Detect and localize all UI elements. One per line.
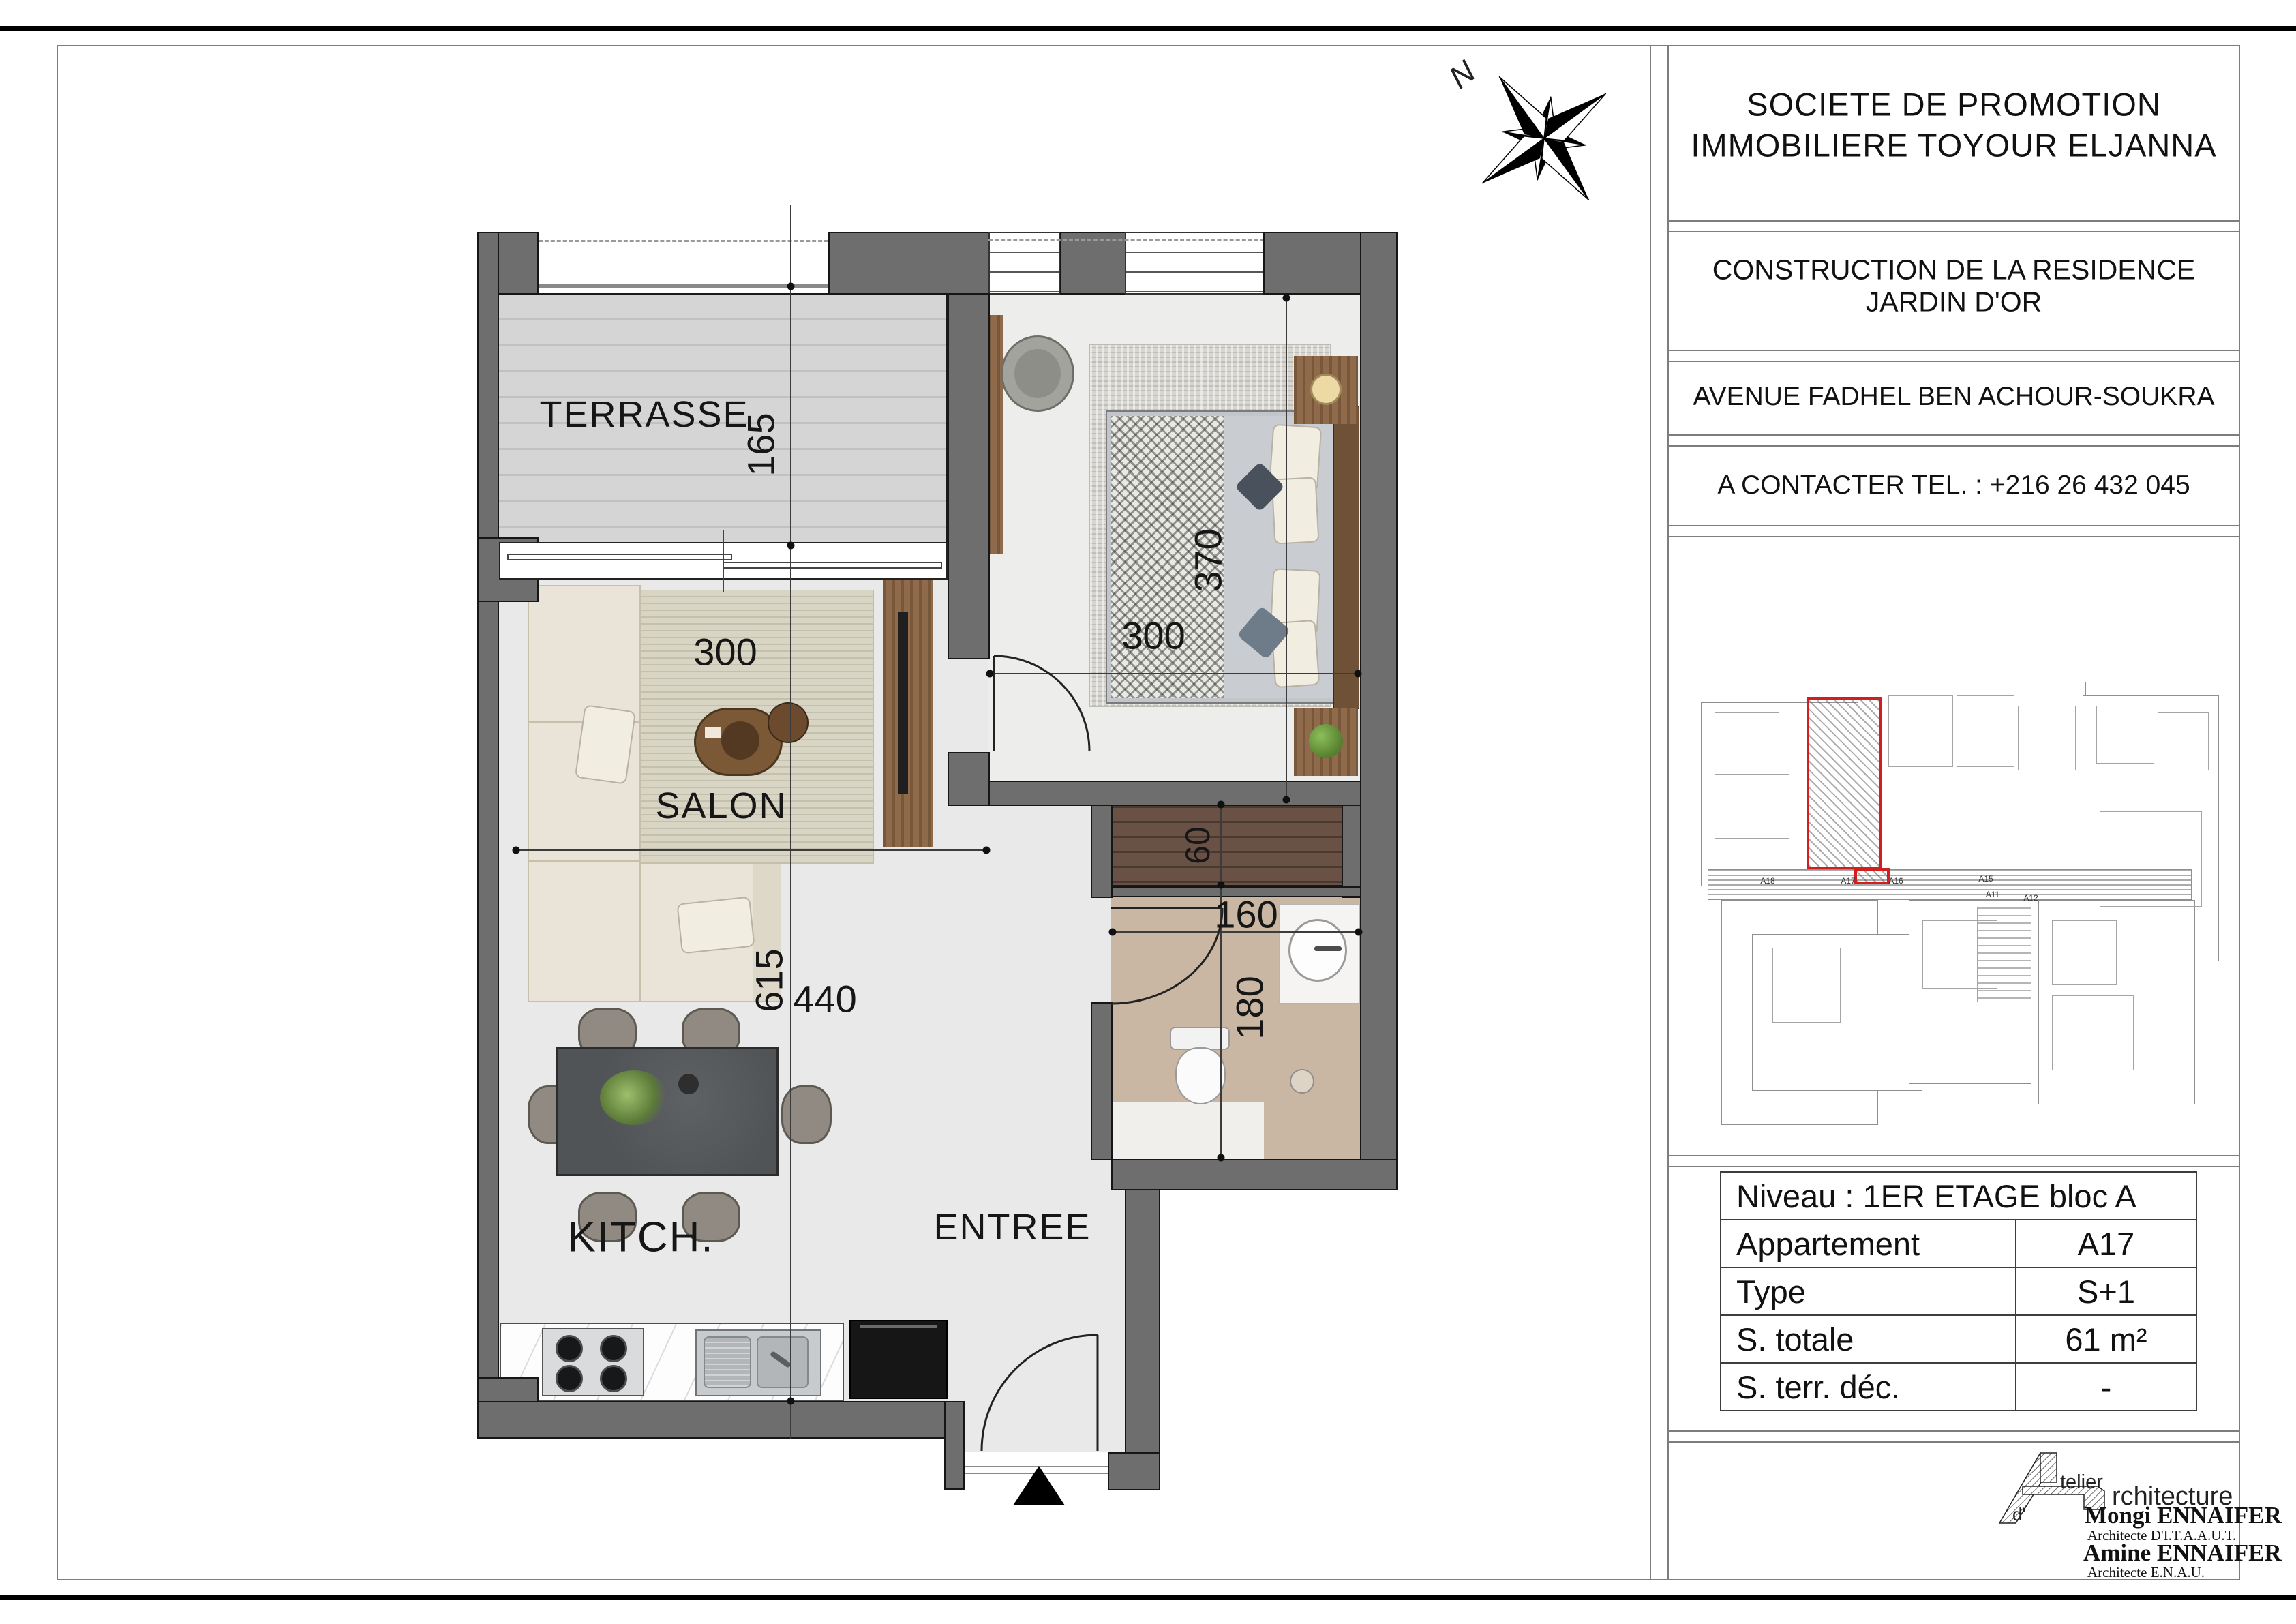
dim-bath-160: 160	[1214, 892, 1278, 937]
row-value: -	[2101, 1368, 2112, 1406]
table-header-row: Niveau : 1ER ETAGE bloc A	[1720, 1171, 2197, 1220]
dim-wardrobe-60: 60	[1178, 826, 1218, 864]
row-label: S. terr. déc.	[1736, 1368, 1900, 1406]
entree-label: ENTREE	[933, 1206, 1091, 1248]
sidebar-divider	[1669, 350, 2240, 351]
terrasse-label: TERRASSE	[539, 393, 749, 436]
sidebar-divider	[1669, 536, 2240, 537]
overview-room	[2052, 995, 2134, 1070]
project-title-line2: JARDIN D'OR	[1667, 286, 2240, 318]
architect-name-2: Amine ENNAIFER	[2083, 1539, 2282, 1567]
sidebar-divider	[1669, 525, 2240, 526]
dim-terrasse-165: 165	[739, 412, 783, 476]
overview-room	[1715, 774, 1789, 839]
compass-long-points	[1459, 53, 1629, 224]
overview-highlighted-unit-tab	[1854, 868, 1890, 884]
architect-title-2: Architecte E.N.A.U.	[2087, 1564, 2205, 1581]
row-value: A17	[2078, 1225, 2135, 1263]
overview-corridor	[1708, 869, 2192, 900]
table-row-value: A17	[2015, 1219, 2197, 1268]
overview-unit-label: A16	[1888, 876, 1903, 886]
sidebar-divider	[1669, 434, 2240, 436]
drawing-sheet: TERRASSE SALON KITCH. ENTREE 165 300 440…	[0, 0, 2296, 1624]
bedroom-door-arc	[994, 656, 1089, 751]
row-value: S+1	[2077, 1273, 2135, 1310]
project-title-line1: CONSTRUCTION DE LA RESIDENCE	[1667, 254, 2240, 286]
sidebar-divider	[1669, 1155, 2240, 1156]
sidebar-divider	[1669, 1441, 2240, 1443]
sidebar-divider	[1669, 361, 2240, 362]
dim-bedroom-300: 300	[1121, 614, 1185, 658]
logo-d-text: d'	[2012, 1504, 2025, 1525]
table-row-label: Appartement	[1720, 1219, 2016, 1268]
sidebar-divider	[1669, 1166, 2240, 1167]
kitchen-label: KITCH.	[567, 1214, 714, 1262]
row-label: S. totale	[1736, 1321, 1854, 1358]
overview-room	[2158, 712, 2209, 770]
architect-name-1: Mongi ENNAIFER	[2085, 1502, 2282, 1529]
sidebar-divider	[1669, 445, 2240, 447]
company-name-line1: SOCIETE DE PROMOTION	[1667, 86, 2240, 123]
table-row-label: Type	[1720, 1267, 2016, 1316]
overview-unit-label: A17	[1841, 876, 1855, 886]
table-row-label: S. totale	[1720, 1314, 2016, 1364]
sidebar-divider	[1669, 220, 2240, 222]
bathroom-door-arc	[1111, 908, 1222, 1004]
project-address: AVENUE FADHEL BEN ACHOUR-SOUKRA	[1667, 382, 2240, 412]
entry-arrow-icon	[1013, 1466, 1065, 1505]
table-header-text: Niveau : 1ER ETAGE bloc A	[1736, 1177, 2136, 1215]
overview-room	[2018, 706, 2076, 770]
dim-kitchen-615: 615	[747, 948, 791, 1012]
table-row-label: S. terr. déc.	[1720, 1362, 2016, 1411]
overview-room	[1772, 948, 1841, 1023]
overview-unit-label: A12	[2023, 893, 2038, 903]
table-row-value: S+1	[2015, 1267, 2197, 1316]
overview-room	[1957, 695, 2014, 767]
overview-room	[2096, 706, 2154, 764]
overview-unit-label: A18	[1760, 876, 1774, 886]
dim-bath-180: 180	[1228, 976, 1272, 1039]
company-name-line2: IMMOBILIERE TOYOUR ELJANNA	[1667, 127, 2240, 164]
table-row-value: 61 m²	[2015, 1314, 2197, 1364]
floor-overview-plan: A18 A17 A16 A15 A11 A12	[1684, 675, 2229, 1152]
overview-highlighted-unit	[1807, 697, 1882, 869]
sidebar-divider	[1669, 1430, 2240, 1432]
salon-label: SALON	[655, 785, 787, 827]
row-label: Type	[1736, 1273, 1806, 1310]
dim-salon-440: 440	[793, 977, 856, 1021]
contact-phone: A CONTACTER TEL. : +216 26 432 045	[1667, 470, 2240, 500]
logo-atelier-text: telier	[2060, 1471, 2103, 1494]
overview-unit-label: A11	[1986, 890, 1999, 899]
table-row-value: -	[2015, 1362, 2197, 1411]
dim-salon-300: 300	[693, 630, 757, 674]
sidebar-divider	[1669, 231, 2240, 232]
north-compass-icon	[1459, 53, 1629, 224]
overview-unit-label: A15	[1978, 874, 1993, 884]
row-value: 61 m²	[2065, 1321, 2147, 1358]
overview-room	[2052, 920, 2117, 985]
row-label: Appartement	[1736, 1225, 1920, 1263]
overview-room	[1888, 695, 1953, 767]
dim-bedroom-370: 370	[1186, 528, 1230, 592]
overview-room	[1715, 712, 1779, 770]
overview-stairs	[1977, 907, 2031, 1002]
entry-door-arc	[982, 1335, 1098, 1451]
